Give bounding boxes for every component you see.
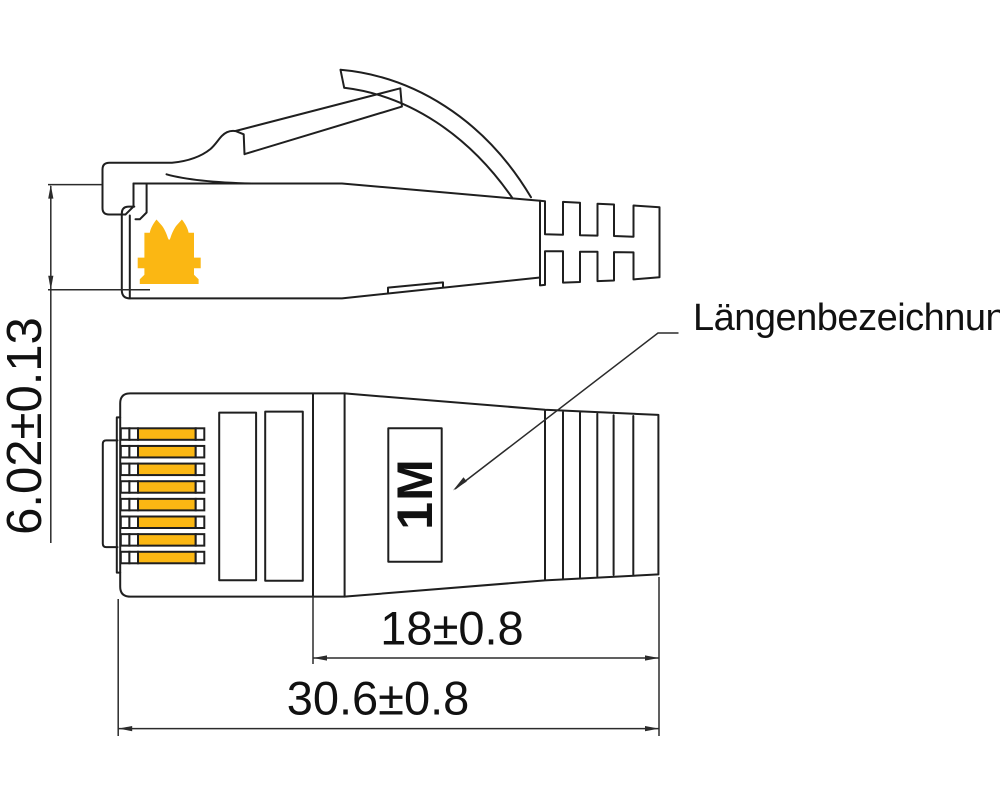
pin-contact-bar bbox=[138, 446, 196, 458]
pin-contact-cell bbox=[196, 464, 205, 476]
length-designation-label: Längenbezeichnung bbox=[693, 297, 1000, 340]
pin-contact-cell bbox=[121, 552, 130, 564]
clip-icon bbox=[138, 220, 201, 285]
pin-contact-cell bbox=[196, 446, 205, 458]
latch-bracket-bottom bbox=[103, 440, 118, 547]
boot-loop-band bbox=[341, 70, 532, 198]
pin-contact-bar bbox=[138, 517, 196, 529]
plug-body-outline bbox=[120, 393, 344, 596]
strain-relief-ribs-side bbox=[540, 201, 660, 286]
pin-contact-bar bbox=[138, 464, 196, 476]
side-view bbox=[103, 70, 660, 299]
overall-length-dimension-text: 30.6±0.8 bbox=[287, 671, 470, 726]
latch-hook-outline bbox=[103, 131, 245, 215]
technical-drawing-canvas bbox=[0, 0, 1000, 800]
pin-contact-cell bbox=[129, 446, 138, 458]
pin-contact-cell bbox=[196, 499, 205, 511]
pin-contact-cell bbox=[196, 534, 205, 546]
length-marking-text: 1M bbox=[386, 458, 444, 529]
latch-underside-curve bbox=[167, 174, 253, 183]
pin-contact-cell bbox=[121, 517, 130, 529]
pin-contact-bar bbox=[138, 534, 196, 546]
pin-contact-cell bbox=[196, 552, 205, 564]
pin-contact-cell bbox=[121, 428, 130, 440]
boot-arrow-left-icon bbox=[313, 655, 327, 660]
pin-contact-cell bbox=[121, 499, 130, 511]
pin-contact-bar bbox=[138, 552, 196, 564]
pin-contact-cell bbox=[129, 534, 138, 546]
pin-contact-cell bbox=[129, 428, 138, 440]
pin-contact-cell bbox=[121, 534, 130, 546]
rj45-dimension-drawing: Längenbezeichnung 1M 6.02±0.13 18±0.8 30… bbox=[0, 0, 1000, 800]
pin-contact-cell bbox=[129, 499, 138, 511]
pin-contact-cell bbox=[121, 464, 130, 476]
plug-height-dimension-text: 6.02±0.13 bbox=[0, 317, 53, 535]
body-top-edge bbox=[134, 184, 541, 201]
latch-protector-arm bbox=[236, 88, 402, 154]
plug-front-face bbox=[122, 207, 135, 299]
pin-contact-cell bbox=[121, 446, 130, 458]
overall-arrow-right-icon bbox=[645, 726, 659, 731]
pin-contact-cell bbox=[196, 428, 205, 440]
body-window-1 bbox=[219, 413, 256, 581]
pin-contact-cell bbox=[196, 481, 205, 493]
pin-contact-cell bbox=[129, 517, 138, 529]
pin-contact-cell bbox=[121, 481, 130, 493]
leader-arrowhead-icon bbox=[453, 477, 467, 490]
body-window-2 bbox=[265, 412, 303, 581]
pin-contacts bbox=[121, 428, 205, 563]
latch-notch-detail bbox=[136, 184, 147, 220]
pin-contact-cell bbox=[129, 464, 138, 476]
height-arrow-down-icon bbox=[48, 276, 53, 290]
overall-arrow-left-icon bbox=[118, 726, 132, 731]
height-arrow-up-icon bbox=[48, 185, 53, 199]
boot-length-dimension-text: 18±0.8 bbox=[380, 601, 523, 656]
pin-contact-cell bbox=[196, 517, 205, 529]
pin-contact-cell bbox=[129, 481, 138, 493]
boot-arrow-right-icon bbox=[645, 655, 659, 660]
pin-contact-cell bbox=[129, 552, 138, 564]
pin-contact-bar bbox=[138, 428, 196, 440]
pin-contact-bar bbox=[138, 481, 196, 493]
height-extension-lines bbox=[48, 185, 150, 290]
pin-contact-bar bbox=[138, 499, 196, 511]
